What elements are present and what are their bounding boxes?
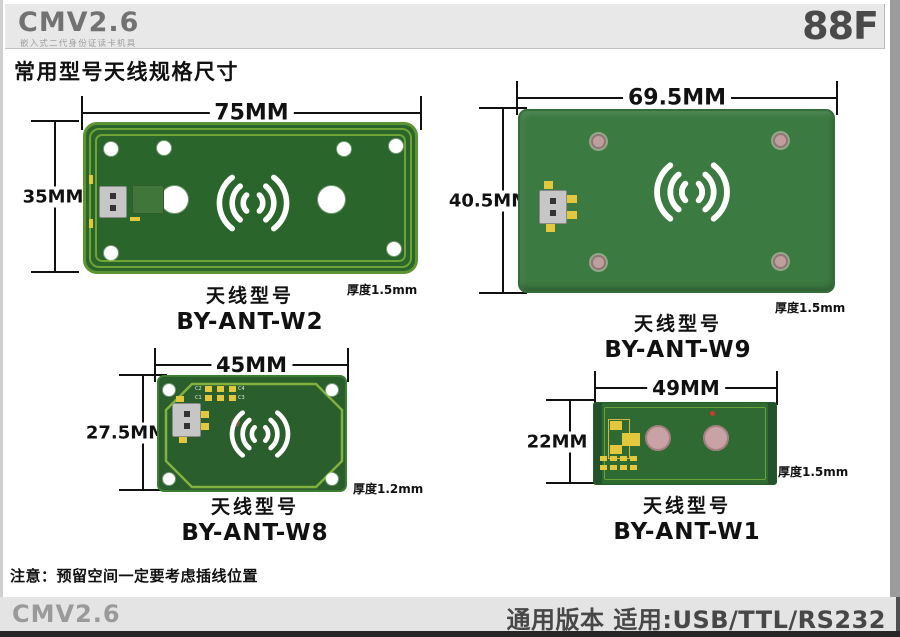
connector-pin	[550, 210, 556, 216]
w8-thickness-label: 厚度1.2mm	[353, 480, 423, 497]
mounting-hole	[104, 246, 118, 260]
footer-version-text: 通用版本 适用:USB/TTL/RS232	[507, 600, 887, 635]
solder-pad	[217, 386, 224, 392]
section-title: 常用型号天线规格尺寸	[14, 56, 239, 86]
dim-tick	[420, 96, 422, 130]
solder-pad	[610, 421, 622, 430]
mounting-hole	[387, 242, 401, 256]
solder-pad	[205, 386, 212, 392]
dim-tick	[594, 371, 596, 405]
page-code: 88F	[802, 4, 878, 48]
w9-thickness-label: 厚度1.5mm	[775, 299, 845, 316]
dim-tick	[776, 371, 778, 405]
dim-tick	[546, 482, 594, 484]
header-band: CMV2.6 嵌入式二代身份证读卡机具 88F	[5, 4, 885, 49]
connector-pin	[110, 205, 116, 211]
usb-connector	[99, 186, 127, 218]
model-name: BY-ANT-W1	[537, 519, 837, 545]
connector-pin	[184, 423, 190, 429]
chip-footprint	[132, 185, 164, 214]
mounting-hole	[104, 142, 118, 156]
pad-label: C3	[238, 395, 245, 401]
w2-thickness-label: 厚度1.5mm	[347, 281, 417, 298]
w9-model-block: 天线型号 BY-ANT-W9	[528, 309, 828, 363]
brand-subtitle: 嵌入式二代身份证读卡机具	[20, 37, 136, 49]
solder-pad	[610, 445, 622, 454]
usb-connector	[172, 403, 201, 437]
model-type-label: 天线型号	[537, 491, 837, 518]
mounting-hole	[326, 473, 338, 485]
pcb-by-ant-w2	[83, 122, 418, 274]
pad-label: C4	[238, 386, 245, 392]
page-left-border	[0, 0, 3, 637]
solder-pad	[600, 465, 607, 470]
solder-pad	[546, 224, 555, 232]
pcb-by-ant-w8: C2 C4 C1 C3	[157, 375, 347, 492]
solder-pad	[630, 456, 637, 461]
large-hole	[318, 186, 345, 213]
led-dot	[710, 411, 715, 416]
mounting-hole	[773, 133, 788, 148]
w9-width-label: 69.5MM	[623, 86, 731, 111]
usb-connector	[539, 190, 567, 224]
solder-pad	[620, 465, 627, 470]
w1-height-dimension: 22MM	[546, 399, 594, 484]
contactless-antenna-icon	[642, 156, 742, 228]
dim-tick	[479, 292, 527, 294]
dim-tick	[546, 399, 594, 401]
w2-height-label: 35MM	[18, 186, 89, 207]
mounting-hole	[389, 139, 403, 153]
w8-width-label: 45MM	[211, 353, 292, 377]
solder-pad	[567, 211, 577, 219]
solder-pad	[229, 386, 236, 392]
mounting-hole	[591, 255, 606, 270]
large-hole	[645, 425, 671, 451]
pad-label: C1	[195, 395, 202, 401]
model-name: BY-ANT-W2	[100, 309, 400, 335]
mounting-hole	[326, 384, 338, 396]
spec-sheet-page: CMV2.6 嵌入式二代身份证读卡机具 88F 常用型号天线规格尺寸 75MM …	[0, 0, 900, 637]
dim-tick	[31, 120, 79, 122]
solder-pad	[217, 395, 224, 401]
solder-pad	[179, 437, 187, 443]
solder-pad	[620, 456, 627, 461]
mounting-hole	[337, 142, 351, 156]
solder-pad	[544, 181, 553, 189]
solder-pad	[622, 433, 640, 446]
large-hole	[161, 186, 188, 213]
mounting-hole	[773, 254, 788, 269]
solder-pad	[89, 175, 93, 184]
pcb-by-ant-w9	[518, 109, 835, 293]
footer-band: CMV2.6 通用版本 适用:USB/TTL/RS232	[0, 597, 900, 631]
connector-pin	[184, 411, 190, 417]
solder-pad	[205, 395, 212, 401]
solder-pad	[229, 395, 236, 401]
note-text: 注意：预留空间一定要考虑插线位置	[10, 565, 258, 586]
dim-tick	[479, 107, 527, 109]
model-name: BY-ANT-W8	[105, 520, 405, 546]
mounting-hole	[163, 473, 175, 485]
model-name: BY-ANT-W9	[528, 337, 828, 363]
solder-pad	[201, 411, 209, 418]
mounting-hole	[157, 141, 171, 155]
w1-height-label: 22MM	[522, 431, 593, 452]
mounting-hole	[163, 384, 175, 396]
brand-logo: CMV2.6	[18, 7, 139, 38]
mounting-hole	[591, 134, 606, 149]
dim-tick	[836, 81, 838, 115]
connector-pin	[110, 193, 116, 199]
w8-model-block: 天线型号 BY-ANT-W8	[105, 492, 405, 546]
w1-width-label: 49MM	[647, 376, 725, 400]
w1-width-dimension: 49MM	[594, 371, 778, 405]
solder-pad	[130, 217, 140, 221]
pcb-by-ant-w1	[593, 402, 777, 485]
contactless-antenna-icon	[205, 174, 301, 232]
solder-pad	[610, 456, 617, 461]
solder-pad	[201, 423, 209, 430]
page-right-border	[890, 0, 900, 631]
dim-tick	[81, 96, 83, 130]
dim-tick	[31, 271, 79, 273]
footer-brand-logo: CMV2.6	[12, 600, 121, 628]
w1-model-block: 天线型号 BY-ANT-W1	[537, 491, 837, 545]
solder-pad	[176, 396, 184, 402]
w2-height-dimension: 35MM	[31, 120, 79, 273]
connector-pin	[550, 198, 556, 204]
pad-label: C2	[195, 386, 202, 392]
contactless-antenna-icon	[220, 406, 300, 462]
large-hole	[703, 425, 729, 451]
solder-pad	[567, 195, 577, 203]
solder-pad	[600, 456, 607, 461]
w1-thickness-label: 厚度1.5mm	[778, 463, 848, 480]
page-bottom-border	[0, 631, 900, 637]
solder-pad	[89, 219, 93, 228]
solder-pad	[610, 465, 617, 470]
solder-pad	[630, 465, 637, 470]
